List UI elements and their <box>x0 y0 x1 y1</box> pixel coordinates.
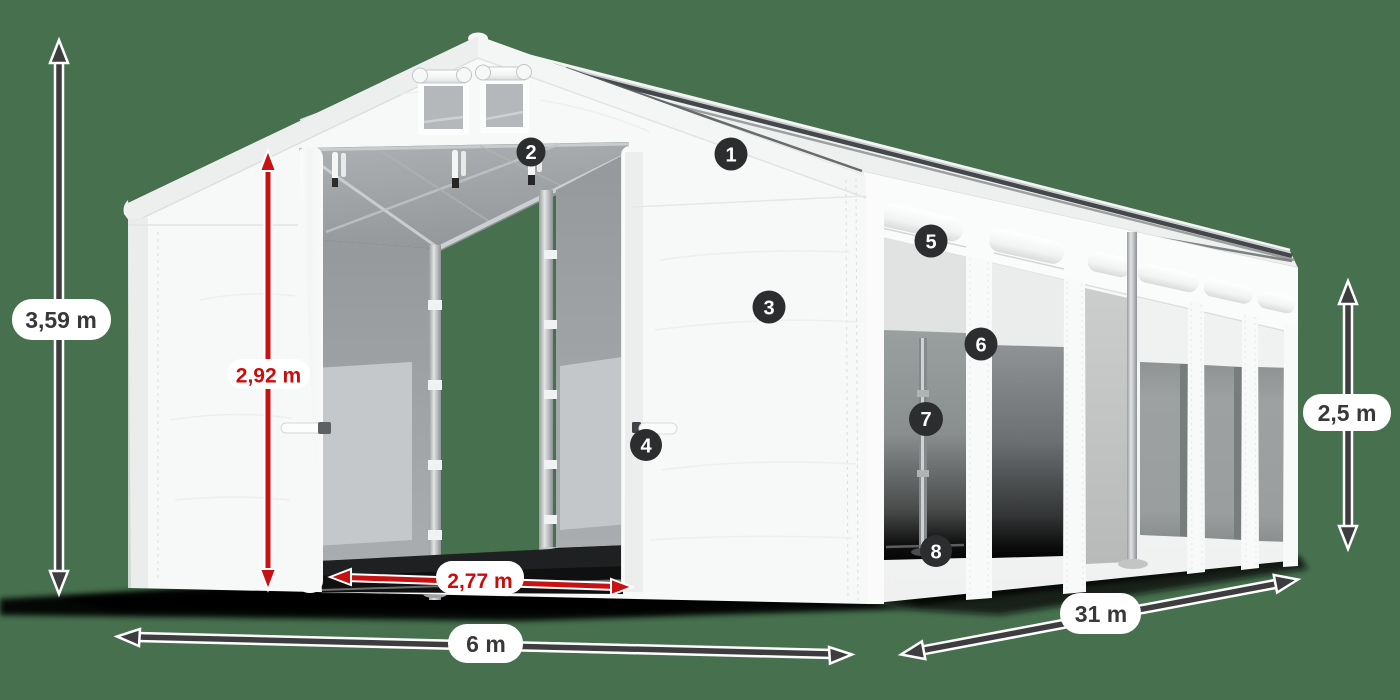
svg-text:3,59 m: 3,59 m <box>25 307 97 333</box>
svg-text:31 m: 31 m <box>1075 601 1127 627</box>
svg-text:6: 6 <box>975 335 986 357</box>
svg-text:3: 3 <box>763 298 774 320</box>
svg-text:6 m: 6 m <box>466 631 506 657</box>
svg-text:2: 2 <box>525 142 536 164</box>
svg-text:4: 4 <box>640 436 652 458</box>
svg-text:7: 7 <box>920 409 931 431</box>
svg-text:8: 8 <box>930 542 941 564</box>
svg-text:5: 5 <box>925 232 936 254</box>
svg-text:2,5 m: 2,5 m <box>1318 400 1377 426</box>
svg-text:2,92 m: 2,92 m <box>236 365 301 388</box>
svg-text:2,77 m: 2,77 m <box>447 570 512 593</box>
svg-text:1: 1 <box>725 145 736 167</box>
